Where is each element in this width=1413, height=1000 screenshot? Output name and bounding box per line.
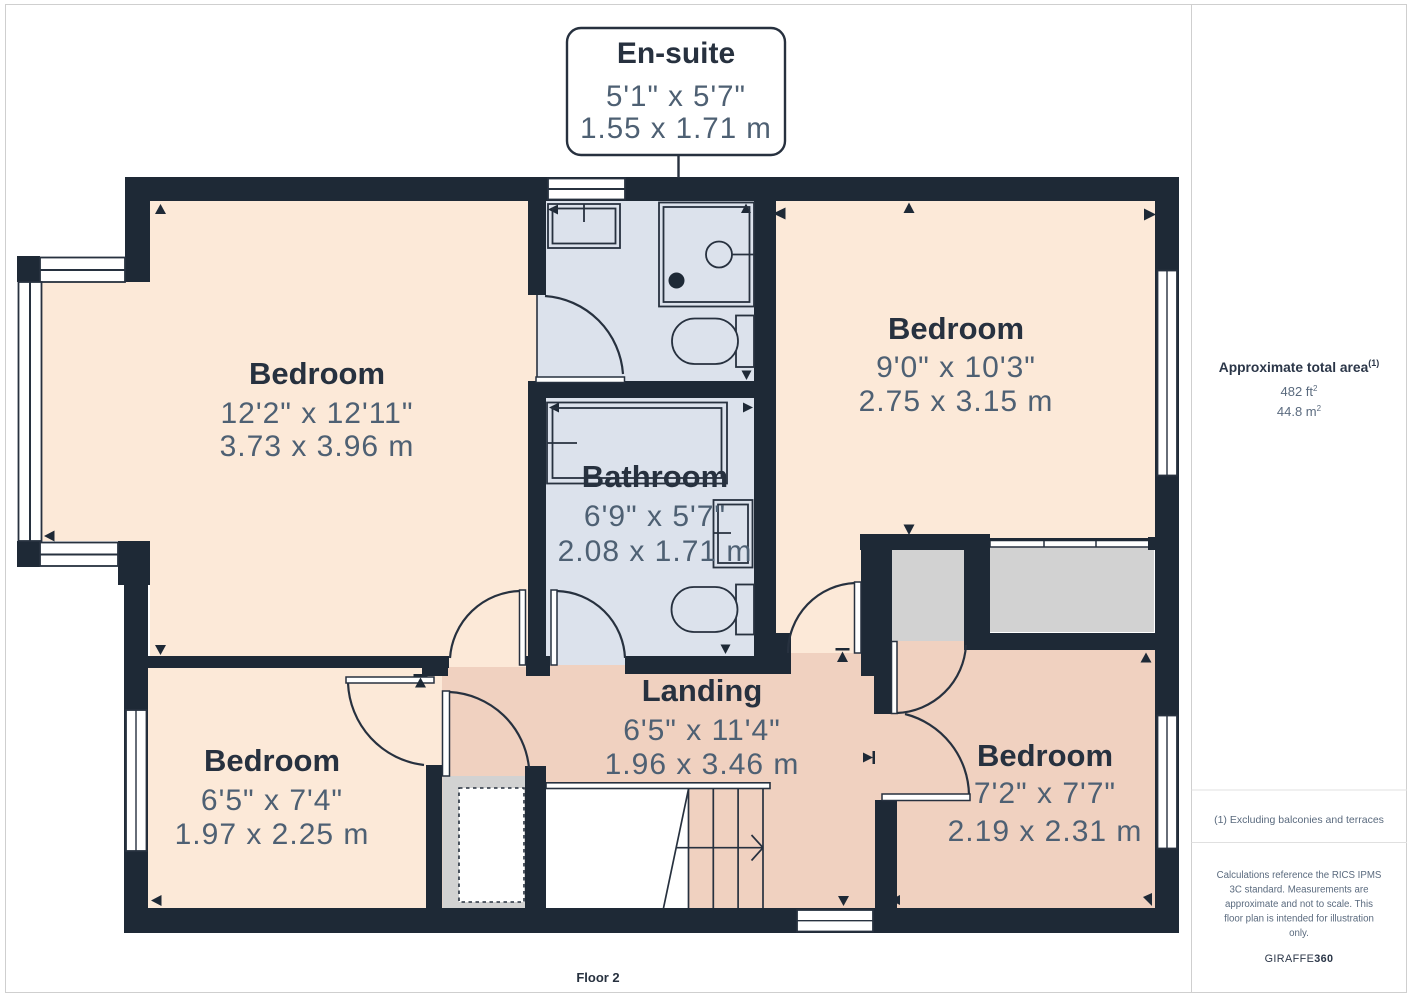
svg-text:floor plan is intended for ill: floor plan is intended for illustration: [1224, 914, 1374, 925]
svg-text:2.19 x 2.31 m: 2.19 x 2.31 m: [948, 815, 1143, 848]
svg-text:approximate and not to scale.: approximate and not to scale. This: [1225, 899, 1373, 910]
svg-text:1.97 x 2.25 m: 1.97 x 2.25 m: [175, 818, 370, 851]
svg-text:6'5" x 11'4": 6'5" x 11'4": [623, 714, 781, 747]
svg-text:482 ft2: 482 ft2: [1281, 384, 1319, 399]
svg-text:(1) Excluding balconies and te: (1) Excluding balconies and terraces: [1214, 814, 1384, 826]
svg-text:Calculations reference the RIC: Calculations reference the RICS IPMS: [1217, 870, 1382, 881]
svg-text:9'0" x 10'3": 9'0" x 10'3": [876, 351, 1036, 384]
svg-text:Approximate total area(1): Approximate total area(1): [1219, 358, 1380, 375]
svg-text:12'2" x 12'11": 12'2" x 12'11": [221, 397, 414, 430]
svg-text:Bedroom: Bedroom: [204, 743, 340, 778]
svg-text:Floor 2: Floor 2: [576, 970, 619, 985]
svg-text:2.75 x 3.15 m: 2.75 x 3.15 m: [859, 385, 1054, 418]
svg-text:3.73 x 3.96 m: 3.73 x 3.96 m: [220, 430, 415, 463]
svg-text:GIRAFFE360: GIRAFFE360: [1265, 953, 1334, 965]
svg-text:6'5" x 7'4": 6'5" x 7'4": [201, 784, 343, 817]
svg-text:1.55 x 1.71 m: 1.55 x 1.71 m: [580, 112, 772, 145]
svg-text:Bedroom: Bedroom: [249, 356, 385, 391]
svg-text:Bathroom: Bathroom: [582, 459, 728, 494]
svg-text:Landing: Landing: [642, 673, 763, 708]
svg-text:2.08 x 1.71 m: 2.08 x 1.71 m: [558, 535, 753, 568]
svg-text:3C standard. Measurements are: 3C standard. Measurements are: [1230, 885, 1369, 896]
svg-text:1.96 x 3.46 m: 1.96 x 3.46 m: [605, 748, 800, 781]
svg-text:7'2" x 7'7": 7'2" x 7'7": [974, 777, 1116, 810]
svg-text:Bedroom: Bedroom: [977, 738, 1113, 773]
svg-text:6'9" x 5'7": 6'9" x 5'7": [584, 500, 726, 533]
svg-text:5'1" x 5'7": 5'1" x 5'7": [606, 80, 746, 113]
svg-text:Bedroom: Bedroom: [888, 311, 1024, 346]
svg-text:44.8 m2: 44.8 m2: [1277, 404, 1322, 419]
svg-text:only.: only.: [1289, 928, 1309, 939]
svg-text:En-suite: En-suite: [617, 37, 735, 70]
